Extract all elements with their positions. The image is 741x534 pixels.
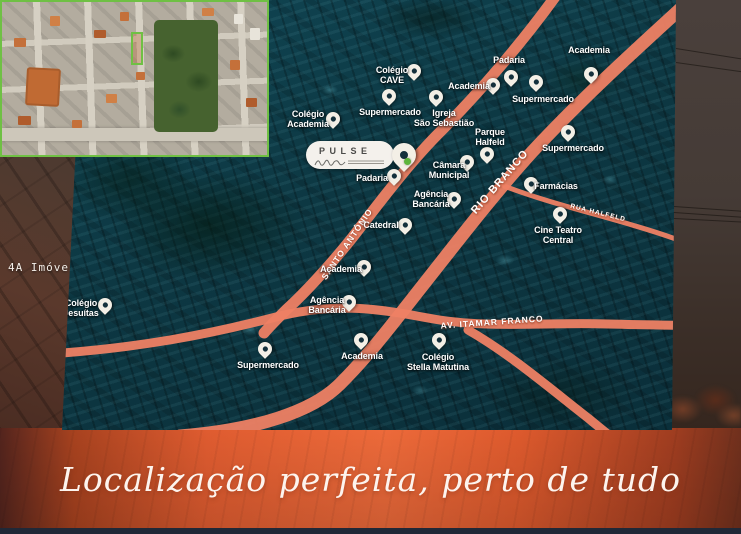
inset-avenue: [2, 128, 269, 141]
bottom-navy-strip: [0, 528, 741, 534]
pulse-logo-text: PULSE: [319, 146, 372, 156]
poi-label: Parque Halfeld: [475, 128, 505, 148]
inset-roof: [230, 60, 240, 70]
poi-label: Supermercado: [512, 95, 574, 105]
inset-park: [154, 20, 218, 132]
poi-label: Agência Bancária: [412, 190, 449, 210]
logo-smallprint: [348, 159, 384, 164]
inset-roof: [94, 30, 106, 38]
inset-roof: [14, 38, 26, 47]
inset-roof: [234, 14, 243, 24]
inset-roof: [120, 12, 129, 21]
inset-roof: [246, 98, 257, 107]
poi-label: Colégio Stella Matutina: [407, 353, 469, 373]
poi-label: Academia: [341, 352, 383, 362]
poi-label: Igreja São Sebastião: [414, 109, 474, 129]
poi-label: Colégio Academia: [287, 110, 329, 130]
pulse-logo-pill: PULSE: [306, 141, 394, 169]
poi-label: Academia: [448, 82, 490, 92]
poi-label: Agência Bancária: [308, 296, 345, 316]
poi-label: Supermercado: [359, 108, 421, 118]
inset-church-roof: [25, 67, 61, 107]
poi-label: Academia: [320, 265, 362, 275]
satellite-inset: [0, 0, 269, 157]
inset-roof: [250, 28, 260, 40]
poi-label: Padaria: [493, 56, 525, 66]
inset-roof: [72, 120, 82, 128]
logo-signature-script: [314, 157, 348, 167]
inset-roof: [106, 94, 117, 103]
poi-label: Colégio CAVE: [376, 66, 408, 86]
inset-roof: [18, 116, 31, 125]
poi-label: Catedral: [363, 221, 398, 231]
inset-roof: [136, 72, 145, 80]
inset-roof: [202, 8, 214, 16]
poi-label: Academia: [568, 46, 610, 56]
poi-label: Supermercado: [542, 144, 604, 154]
tagline-script-text: Localização perfeita, perto de tudo: [0, 460, 741, 499]
poi-label: Padaria: [356, 174, 388, 184]
background-trees: [668, 372, 741, 434]
poi-label: Câmara Municipal: [429, 161, 470, 181]
poi-label: Cine Teatro Central: [534, 226, 582, 246]
inset-property-lot-outline: [131, 32, 143, 65]
logo-green-dot: [404, 158, 411, 165]
poi-label: Colégio Jesuítas: [63, 299, 98, 319]
poi-label: Farmácias: [534, 182, 578, 192]
poi-label: Supermercado: [237, 361, 299, 371]
road-branch-southeast: [468, 330, 634, 432]
inset-roof: [50, 16, 60, 26]
